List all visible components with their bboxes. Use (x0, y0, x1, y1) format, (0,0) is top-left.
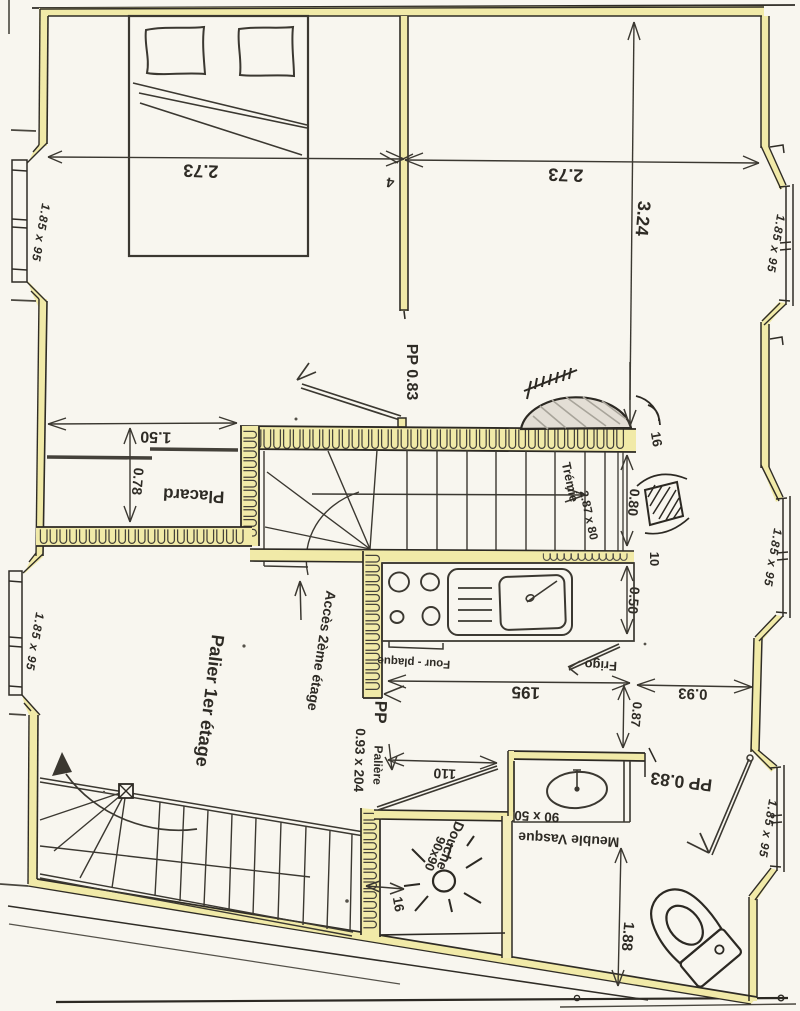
svg-text:110: 110 (433, 765, 457, 782)
svg-text:Frigo: Frigo (584, 657, 617, 674)
svg-text:16: 16 (648, 431, 665, 449)
svg-text:2.73: 2.73 (548, 164, 584, 185)
svg-text:0.93 x 204: 0.93 x 204 (351, 728, 368, 793)
svg-text:90 x 50: 90 x 50 (514, 808, 560, 825)
svg-text:2.73: 2.73 (183, 160, 219, 181)
svg-text:PP 0.83: PP 0.83 (403, 344, 420, 401)
svg-text:195: 195 (511, 683, 540, 703)
svg-text:1.50: 1.50 (140, 427, 172, 445)
svg-text:Palière: Palière (370, 745, 385, 785)
svg-text:16: 16 (390, 896, 407, 914)
svg-text:PP: PP (371, 701, 391, 724)
svg-text:1.88: 1.88 (618, 921, 637, 952)
svg-text:10: 10 (647, 552, 662, 566)
svg-text:0.93: 0.93 (678, 684, 708, 702)
svg-text:0.78: 0.78 (129, 467, 147, 496)
svg-text:3.24: 3.24 (631, 200, 654, 237)
svg-text:Placard: Placard (163, 484, 225, 506)
svg-text:0.87: 0.87 (628, 701, 645, 728)
svg-text:0.80: 0.80 (625, 488, 643, 517)
